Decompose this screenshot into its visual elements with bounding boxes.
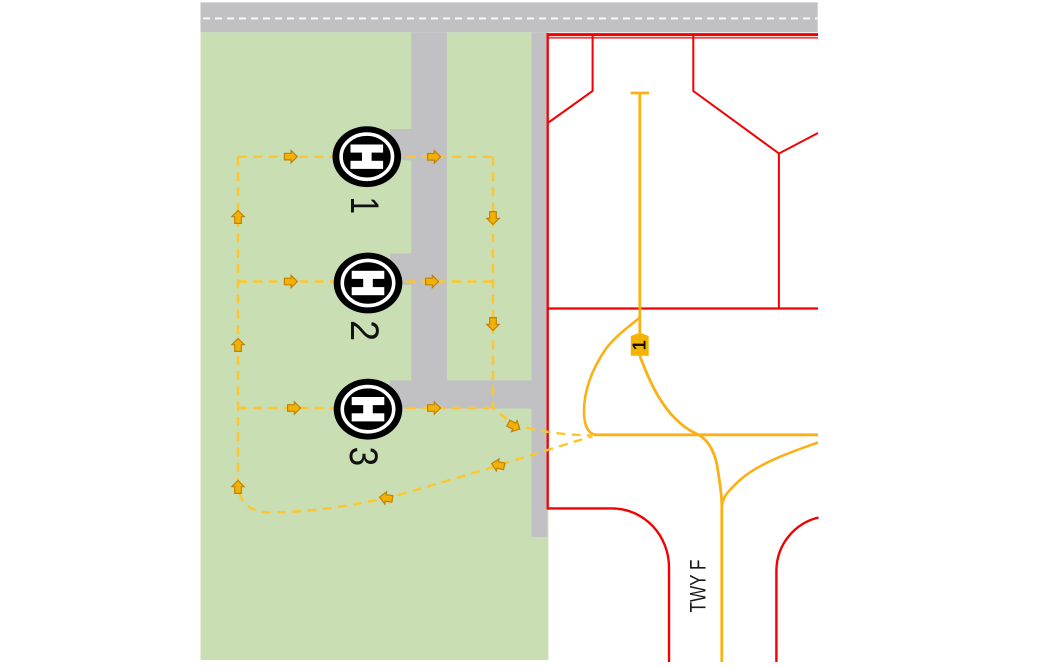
svg-text:1: 1 — [342, 197, 387, 214]
svg-text:TWY F: TWY F — [686, 559, 711, 612]
svg-text:1: 1 — [630, 340, 650, 350]
svg-text:3: 3 — [342, 447, 387, 467]
svg-text:2: 2 — [342, 320, 386, 341]
